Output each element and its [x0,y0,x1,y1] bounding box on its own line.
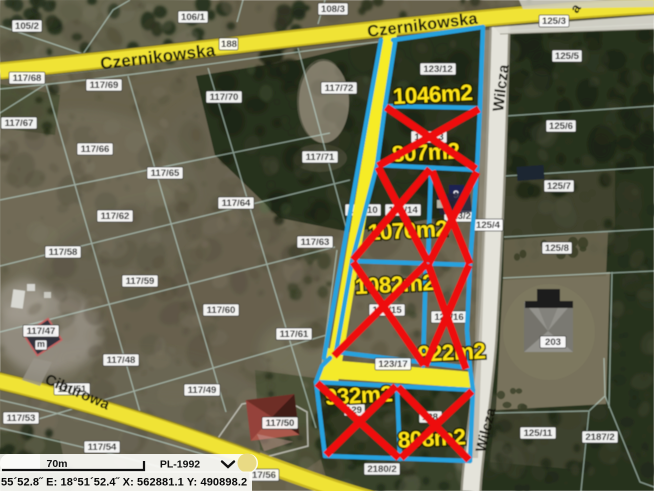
svg-text:125/11: 125/11 [524,428,553,439]
svg-text:105/2: 105/2 [15,21,39,32]
svg-text:117/62: 117/62 [101,211,130,222]
svg-text:117/60: 117/60 [207,305,236,316]
svg-text:117/65: 117/65 [151,168,180,179]
svg-text:125/5: 125/5 [555,51,580,62]
svg-text:125/3: 125/3 [542,16,566,27]
svg-text:117/47: 117/47 [27,326,56,337]
svg-text:2180/2: 2180/2 [367,464,396,475]
svg-text:188: 188 [221,39,238,50]
svg-text:PL-1992: PL-1992 [160,459,200,471]
svg-text:117/48: 117/48 [107,355,136,366]
svg-text:117/63: 117/63 [301,237,330,248]
svg-text:117/69: 117/69 [90,80,119,91]
svg-text:117/49: 117/49 [188,385,217,396]
svg-text:117/70: 117/70 [210,92,239,103]
svg-text:106/1: 106/1 [181,12,206,23]
svg-text:117/68: 117/68 [13,73,42,84]
svg-text:125/6: 125/6 [549,121,573,132]
svg-text:125/4: 125/4 [476,220,501,231]
svg-text:117/72: 117/72 [325,83,354,94]
svg-text:m: m [37,339,45,349]
svg-text:70m: 70m [46,458,67,470]
svg-text:117/61: 117/61 [280,329,309,340]
svg-text:1046m2: 1046m2 [392,80,473,109]
svg-text:125/7: 125/7 [547,181,571,192]
svg-text:117/54: 117/54 [88,442,117,453]
svg-text:117/71: 117/71 [306,152,335,163]
svg-text:123/12: 123/12 [423,64,452,75]
svg-text:2187/2: 2187/2 [585,432,614,443]
svg-text:17/56: 17/56 [252,470,276,481]
svg-text:55´52.8˝ E: 18°51´52.4˝ X: 5: 55´52.8˝ E: 18°51´52.4˝ X: 562881.1 Y: 4… [1,477,247,489]
svg-text:117/58: 117/58 [49,247,78,258]
svg-text:117/53: 117/53 [7,413,36,424]
svg-text:123/17: 123/17 [378,359,407,370]
svg-text:108/3: 108/3 [321,4,345,15]
svg-text:117/50: 117/50 [266,418,295,429]
svg-text:125/8: 125/8 [545,243,570,254]
svg-text:117/64: 117/64 [222,198,251,209]
svg-text:117/59: 117/59 [126,276,155,287]
svg-text:117/66: 117/66 [81,144,110,155]
svg-text:203: 203 [545,337,561,348]
svg-text:117/67: 117/67 [5,118,34,129]
